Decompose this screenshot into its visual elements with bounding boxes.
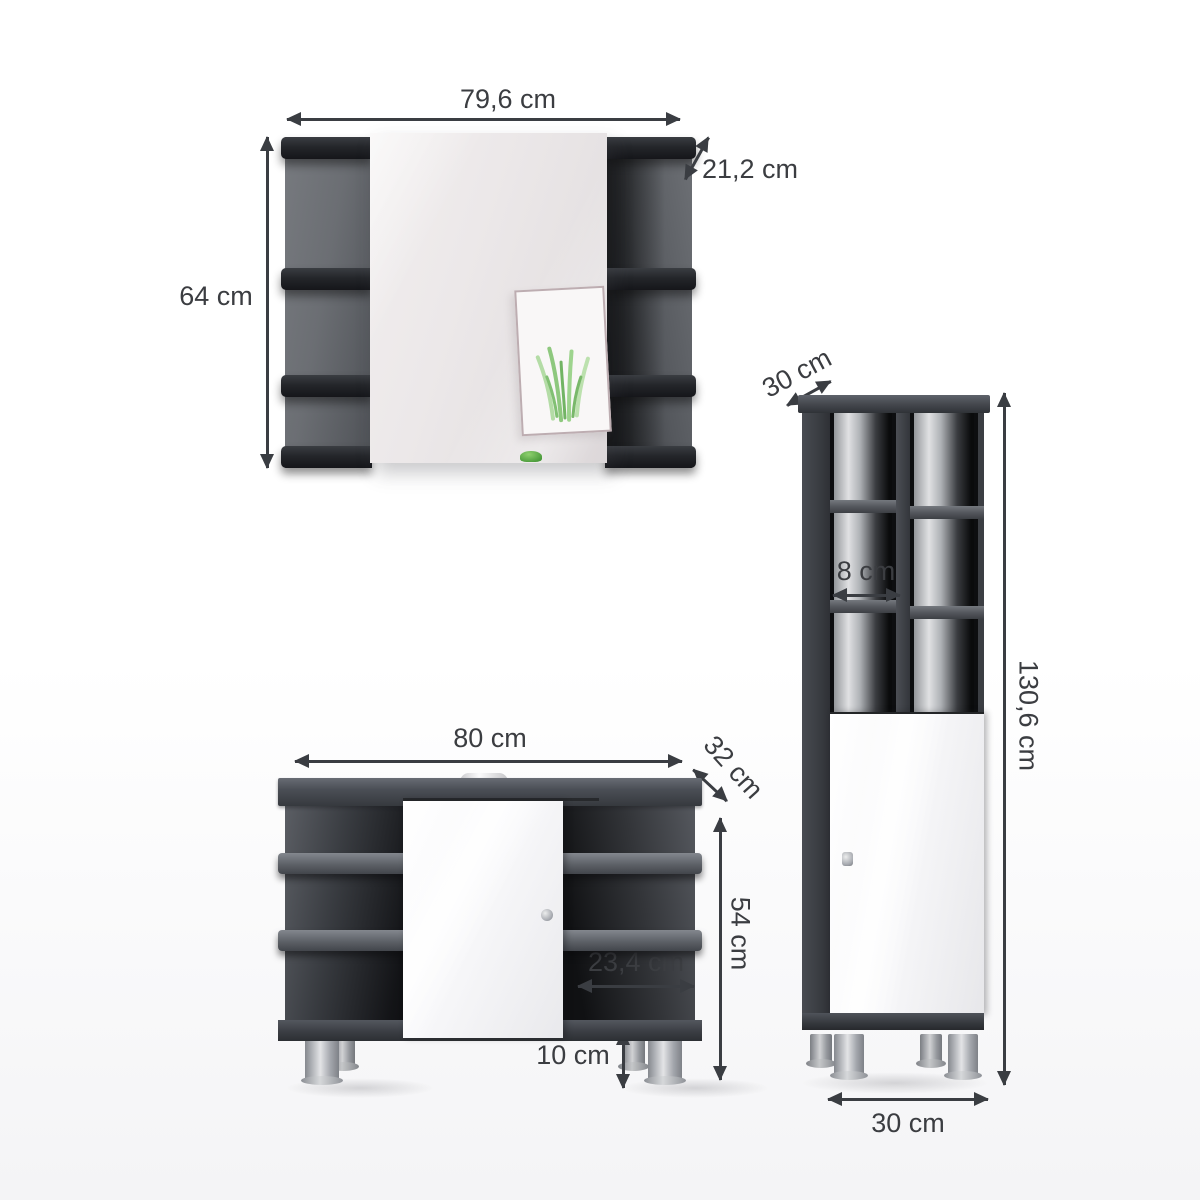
shelf-board: [281, 446, 372, 468]
sink-height-label: 54 cm: [724, 884, 755, 984]
sink-shelf-width-label: 23,4 cm: [561, 947, 711, 978]
cubby-back: [914, 412, 974, 506]
shelf-board: [281, 375, 372, 397]
cabinet-foot: [834, 1034, 864, 1077]
shelf-board: [910, 506, 984, 519]
shelf-board: [605, 268, 696, 290]
tall-height-arrow: [1003, 393, 1006, 1085]
sink-width-arrow: [295, 760, 682, 763]
shelf-compartment-shadow: [605, 397, 665, 446]
shelf-board: [605, 137, 696, 159]
tall-cabinet-top-board: [798, 395, 990, 413]
mirror-width-arrow: [287, 118, 680, 121]
cubby-back: [834, 613, 892, 712]
cabinet-foot: [810, 1034, 832, 1065]
shelf-board: [278, 853, 405, 874]
shelf-board: [605, 446, 696, 468]
tall-cabinet: [798, 393, 990, 1085]
tall-width-label: 30 cm: [848, 1108, 968, 1139]
sink-cabinet-door: [403, 801, 563, 1038]
mirror-height-label: 64 cm: [161, 281, 271, 312]
door-knob: [541, 909, 553, 921]
reflected-picture-frame: [514, 286, 612, 437]
cubby-back: [914, 619, 974, 712]
cabinet-foot: [920, 1034, 942, 1065]
tall-cubby-width-label: 8 cm: [826, 556, 906, 587]
reflected-plant-leaf: [520, 451, 542, 462]
shelf-compartment-shadow: [605, 290, 665, 375]
shelf-board: [281, 268, 372, 290]
sink-shelf-width-arrow: [578, 985, 694, 988]
shelf-board: [561, 853, 702, 874]
product-dimension-diagram: 79,6 cm 21,2 cm 64 cm: [0, 0, 1200, 1200]
mirror-cabinet: [285, 137, 692, 468]
tall-cabinet-door: [830, 712, 984, 1015]
tall-cabinet-side-panel: [802, 412, 830, 1015]
sink-foot-height-label: 10 cm: [518, 1040, 628, 1071]
cubby-back: [914, 519, 974, 606]
tall-cubby-width-arrow: [833, 594, 900, 597]
cabinet-foot: [648, 1039, 682, 1082]
tall-height-label: 130,6 cm: [1012, 646, 1043, 786]
mirror-width-label: 79,6 cm: [423, 84, 593, 115]
mirror-cabinet-right-shelf-unit: [605, 137, 692, 468]
tall-cabinet-bottom-rail: [802, 1013, 984, 1030]
mirror-door: [370, 133, 607, 463]
shelf-compartment-shadow: [605, 159, 665, 268]
cabinet-foot: [948, 1034, 978, 1077]
plant-artwork: [516, 288, 605, 430]
sink-width-label: 80 cm: [420, 723, 560, 754]
cabinet-foot: [305, 1039, 339, 1082]
shelf-board: [605, 375, 696, 397]
shelf-board: [281, 137, 372, 159]
cubby-back: [834, 412, 892, 500]
shelf-board: [910, 606, 984, 619]
sink-height-arrow: [719, 818, 722, 1080]
tall-width-arrow: [828, 1098, 988, 1101]
shelf-board: [561, 930, 702, 951]
shelf-board: [278, 930, 405, 951]
mirror-depth-label: 21,2 cm: [702, 154, 798, 185]
under-sink-cabinet: [278, 773, 702, 1085]
shelf-board: [830, 500, 896, 513]
mirror-cabinet-left-shelf-unit: [285, 137, 372, 468]
right-side-edge: [978, 412, 984, 712]
door-knob: [842, 852, 853, 866]
